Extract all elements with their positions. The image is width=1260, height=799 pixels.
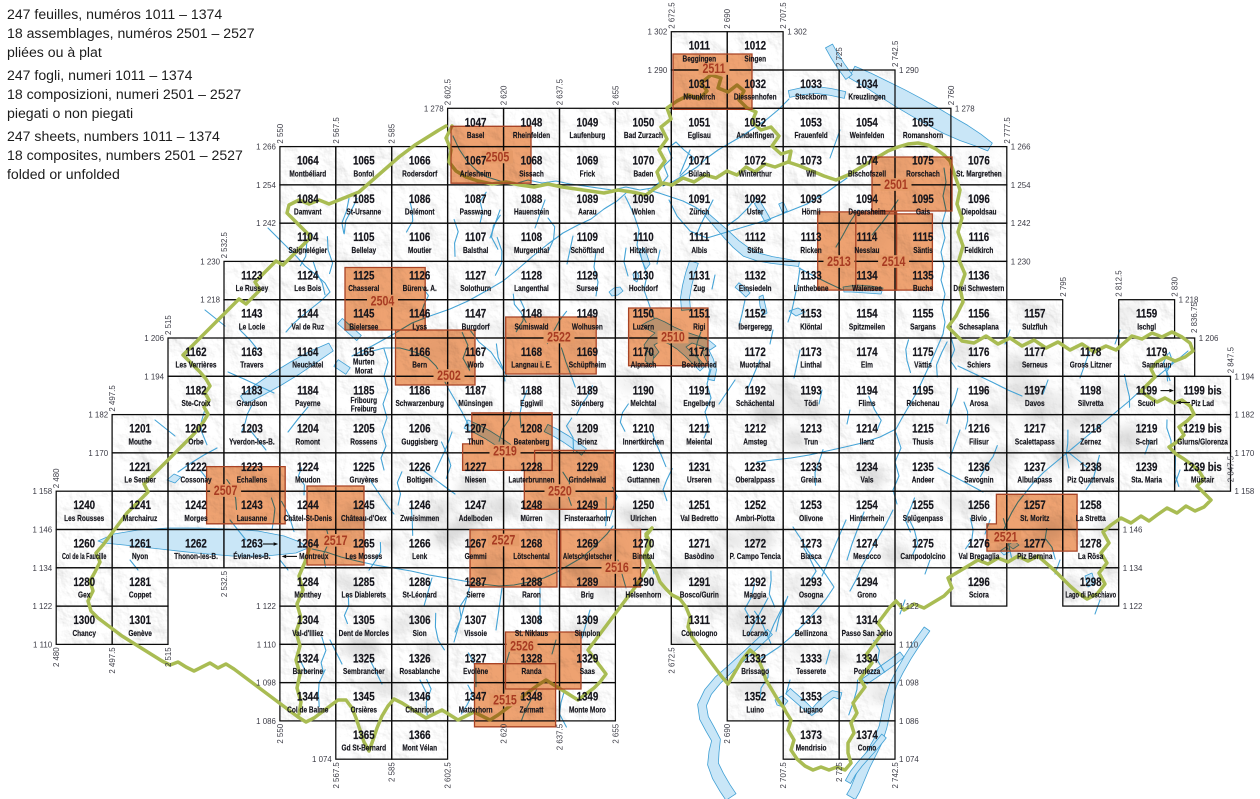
svg-text:Albis: Albis [691,245,707,255]
svg-text:Lago di Poschiavo: Lago di Poschiavo [1065,589,1116,600]
svg-text:2 480: 2 480 [52,468,61,488]
svg-text:Beatenberg: Beatenberg [514,436,550,446]
svg-text:1273: 1273 [800,538,822,551]
svg-text:Brienz: Brienz [577,436,597,446]
svg-text:Müstair: Müstair [1191,475,1214,485]
svg-text:Weinfelden: Weinfelden [850,130,885,140]
svg-text:Zweisimmen: Zweisimmen [400,513,439,523]
svg-text:247 feuilles, numéros 1011 – 1: 247 feuilles, numéros 1011 – 1374 [7,6,222,22]
svg-text:Linthal: Linthal [800,360,821,370]
svg-text:Rheinfelden: Rheinfelden [513,130,551,140]
svg-text:1225: 1225 [353,461,375,474]
svg-text:1352: 1352 [744,691,766,704]
svg-text:1 122: 1 122 [899,602,919,611]
svg-text:Saignelégier: Saignelégier [288,245,327,255]
svg-text:1 158: 1 158 [1235,487,1255,496]
svg-text:1148: 1148 [521,308,542,321]
svg-text:Evolène: Evolène [463,666,488,676]
svg-text:Brig: Brig [581,590,594,600]
svg-text:1203: 1203 [241,423,263,436]
svg-text:Säntis: Säntis [913,245,933,255]
svg-text:1124: 1124 [297,270,318,283]
svg-text:Guttannen: Guttannen [627,475,660,485]
svg-text:2505: 2505 [486,149,510,165]
svg-text:2510: 2510 [661,329,685,345]
svg-text:Davos: Davos [1025,398,1045,408]
svg-text:Münsingen: Münsingen [458,398,493,408]
svg-text:1115: 1115 [913,231,934,244]
svg-text:1048: 1048 [521,117,543,130]
svg-text:2522: 2522 [547,329,571,345]
svg-text:1197: 1197 [1024,385,1045,398]
svg-text:1226: 1226 [409,461,431,474]
svg-text:Burgdorf: Burgdorf [462,321,490,331]
svg-text:Helsenhorn: Helsenhorn [625,590,661,600]
svg-text:1241: 1241 [129,500,151,513]
svg-text:1311: 1311 [689,614,710,627]
svg-text:1272: 1272 [744,538,766,551]
svg-text:1105: 1105 [353,231,374,244]
svg-text:1207: 1207 [465,423,487,436]
svg-text:Murgenthal: Murgenthal [514,245,549,255]
svg-text:1234: 1234 [856,461,878,474]
svg-text:Zermatt: Zermatt [520,704,544,714]
svg-text:Barberine: Barberine [293,666,323,676]
svg-text:Savognin: Savognin [964,475,994,485]
svg-text:1184: 1184 [297,385,318,398]
svg-text:1348: 1348 [521,691,543,704]
svg-text:Gd St-Bernard: Gd St-Bernard [342,743,387,753]
svg-text:1052: 1052 [744,117,766,130]
svg-text:1069: 1069 [577,155,599,168]
svg-text:Col de Balme: Col de Balme [287,704,328,714]
svg-text:2502: 2502 [437,368,461,384]
svg-text:1244: 1244 [297,500,319,513]
svg-text:Mesocco: Mesocco [853,551,881,561]
svg-text:1199: 1199 [1136,385,1157,398]
svg-text:Zug: Zug [693,283,705,293]
svg-text:Winterthur: Winterthur [739,168,772,178]
svg-text:1 110: 1 110 [33,640,53,649]
svg-text:Beckenried: Beckenried [682,360,717,370]
svg-text:1345: 1345 [353,691,375,704]
svg-text:Yverdon-les-B.: Yverdon-les-B. [229,436,275,446]
svg-text:Flims: Flims [858,398,875,408]
svg-text:Thonon-les-B.: Thonon-les-B. [174,551,218,561]
svg-text:1266: 1266 [409,538,431,551]
svg-text:1231: 1231 [688,461,710,474]
svg-text:Meiental: Meiental [686,436,712,446]
svg-text:2513: 2513 [827,254,851,270]
svg-text:2527: 2527 [492,532,516,548]
svg-text:1214: 1214 [856,423,878,436]
svg-text:Zernez: Zernez [1080,436,1101,446]
svg-text:1208: 1208 [521,423,543,436]
svg-text:1212: 1212 [744,423,766,436]
svg-text:Moutier: Moutier [408,245,432,255]
svg-text:1047: 1047 [465,117,487,130]
svg-text:1249: 1249 [577,500,599,513]
svg-text:1195: 1195 [912,385,933,398]
svg-text:Wil: Wil [806,168,816,178]
svg-text:Beggingen: Beggingen [682,53,716,63]
svg-text:2 567.5: 2 567.5 [332,117,341,144]
svg-text:Mürren: Mürren [520,513,542,523]
svg-text:Reichenau: Reichenau [907,398,940,408]
svg-text:pliées ou à plat: pliées ou à plat [7,44,102,60]
svg-text:1270: 1270 [633,538,655,551]
svg-text:Saas: Saas [580,666,595,676]
svg-text:Adelboden: Adelboden [459,513,493,523]
svg-text:1245: 1245 [353,500,375,513]
svg-text:Orsières: Orsières [351,704,377,714]
svg-text:Col de la Faucille: Col de la Faucille [62,551,106,562]
svg-text:2 515: 2 515 [164,315,173,335]
svg-text:2 847.5: 2 847.5 [1227,455,1236,482]
svg-text:Locarno: Locarno [742,628,768,638]
svg-text:1096: 1096 [968,193,990,206]
svg-text:Les Mosses: Les Mosses [345,551,382,561]
svg-text:Gruyères: Gruyères [350,475,379,485]
svg-text:1201: 1201 [129,423,151,436]
svg-text:1253: 1253 [800,500,822,513]
svg-text:1268: 1268 [521,538,543,551]
svg-text:Ilanz: Ilanz [860,436,875,446]
svg-text:2 602.5: 2 602.5 [444,762,453,789]
svg-text:1229: 1229 [577,461,599,474]
svg-text:Muotathal: Muotathal [740,360,771,370]
svg-text:1034: 1034 [856,78,878,91]
svg-text:Sörenberg: Sörenberg [571,398,604,408]
svg-text:1130: 1130 [633,270,654,283]
svg-text:Coppet: Coppet [129,590,152,600]
svg-text:1070: 1070 [633,155,655,168]
svg-text:1262: 1262 [185,538,207,551]
svg-text:1235: 1235 [912,461,934,474]
svg-text:1 266: 1 266 [1011,143,1031,152]
svg-text:1280: 1280 [73,576,95,589]
svg-text:1254: 1254 [856,500,878,513]
svg-text:1086: 1086 [409,193,431,206]
svg-text:1 098: 1 098 [899,679,919,688]
svg-text:1237: 1237 [1024,461,1046,474]
svg-text:1193: 1193 [801,385,822,398]
svg-text:1291: 1291 [688,576,710,589]
svg-text:2 760: 2 760 [947,85,956,105]
svg-text:Schiers: Schiers [967,360,991,370]
svg-text:1334: 1334 [856,653,878,666]
svg-text:Lyss: Lyss [412,321,427,331]
svg-text:Wohlen: Wohlen [632,207,656,217]
svg-text:Piz Lad: Piz Lad [1191,398,1214,408]
svg-text:Basel: Basel [467,130,484,140]
svg-text:1300: 1300 [73,614,95,627]
svg-text:2520: 2520 [548,483,572,499]
svg-text:St-Léonard: St-Léonard [403,590,438,600]
svg-text:2 707.5: 2 707.5 [779,2,788,29]
svg-text:Lausanne: Lausanne [237,513,267,523]
svg-text:Glurns/Glorenza: Glurns/Glorenza [1177,436,1228,446]
svg-text:Elm: Elm [861,360,873,370]
svg-text:2 655: 2 655 [611,85,620,105]
svg-text:Uster: Uster [747,207,764,217]
svg-text:1222: 1222 [185,461,207,474]
svg-text:Bosco/Gurin: Bosco/Gurin [680,590,719,600]
svg-text:2521: 2521 [994,529,1018,545]
svg-text:Laufenburg: Laufenburg [569,130,605,140]
svg-text:2 690: 2 690 [723,8,732,28]
svg-text:Comologno: Comologno [681,628,717,638]
svg-text:1164: 1164 [297,346,318,359]
svg-text:Diepoldsau: Diepoldsau [961,207,996,217]
svg-text:1179: 1179 [1146,346,1167,359]
svg-text:1112: 1112 [745,231,766,244]
svg-text:1290: 1290 [633,576,655,589]
svg-text:Ste-Croix: Ste-Croix [182,398,212,408]
svg-text:Nyon: Nyon [132,551,149,561]
svg-text:1 254: 1 254 [1011,181,1031,190]
svg-text:Tesserete: Tesserete [796,666,826,676]
svg-text:Sembrancher: Sembrancher [343,666,385,676]
svg-text:1324: 1324 [297,653,319,666]
svg-text:Engelberg: Engelberg [683,398,715,408]
svg-text:Degersheim: Degersheim [848,207,885,217]
svg-text:1243: 1243 [241,500,263,513]
svg-text:2 795: 2 795 [1059,276,1068,296]
svg-text:1129: 1129 [577,270,598,283]
svg-text:Schwarzenburg: Schwarzenburg [395,398,444,408]
svg-text:1132: 1132 [745,270,766,283]
svg-text:2 725: 2 725 [835,762,844,782]
svg-text:Kreuzlingen: Kreuzlingen [848,92,886,102]
svg-text:1011: 1011 [689,40,710,53]
svg-text:1 086: 1 086 [899,717,919,726]
svg-text:Morges: Morges [184,513,207,523]
svg-text:1 170: 1 170 [88,449,108,458]
svg-text:Lötschental: Lötschental [513,551,550,561]
svg-text:247 fogli, numeri 1011 – 1374: 247 fogli, numeri 1011 – 1374 [7,67,193,83]
svg-text:1202: 1202 [185,423,207,436]
svg-text:Vättis: Vättis [914,360,932,370]
svg-text:1333: 1333 [800,653,822,666]
svg-text:Steckborn: Steckborn [795,92,827,102]
svg-text:1301: 1301 [129,614,151,627]
svg-text:Andeer: Andeer [912,475,934,485]
svg-text:Lauterbrunnen: Lauterbrunnen [509,475,555,485]
svg-text:Walensee: Walensee [852,283,882,293]
svg-text:2 690: 2 690 [723,723,732,743]
svg-text:1055: 1055 [912,117,934,130]
svg-text:1305: 1305 [353,614,375,627]
svg-text:Guggisberg: Guggisberg [401,436,438,446]
svg-text:1155: 1155 [912,308,933,321]
svg-text:1073: 1073 [800,155,822,168]
svg-text:Hochdorf: Hochdorf [629,283,658,293]
svg-text:1 182: 1 182 [88,411,108,420]
svg-text:2 742.5: 2 742.5 [891,762,900,789]
svg-text:2504: 2504 [371,293,395,309]
svg-text:1211: 1211 [689,423,710,436]
svg-text:Grindelwald: Grindelwald [569,475,607,485]
svg-text:1209: 1209 [577,423,599,436]
svg-text:Val-d'Illiez: Val-d'Illiez [292,628,323,638]
svg-text:Freiburg: Freiburg [351,404,377,414]
svg-text:2 847.5: 2 847.5 [1227,346,1236,373]
svg-text:Orbe: Orbe [188,436,203,446]
svg-text:1 146: 1 146 [1123,526,1143,535]
svg-text:Vals: Vals [860,475,873,485]
svg-text:1215: 1215 [912,423,934,436]
svg-text:Balsthal: Balsthal [463,245,488,255]
svg-text:Châtel-St-Denis: Châtel-St-Denis [284,513,332,523]
svg-text:1285: 1285 [353,576,375,589]
svg-text:1149: 1149 [577,308,598,321]
svg-text:Neunkirch: Neunkirch [683,92,715,102]
svg-text:1294: 1294 [856,576,878,589]
svg-text:2 620: 2 620 [500,85,509,105]
svg-text:1 302: 1 302 [787,28,807,37]
svg-text:1204: 1204 [297,423,319,436]
svg-text:Gex: Gex [78,590,91,600]
svg-text:1277: 1277 [1024,538,1046,551]
svg-text:Mont Vélan: Mont Vélan [402,743,437,753]
svg-text:Nesslau: Nesslau [855,245,880,255]
svg-text:1267: 1267 [465,538,487,551]
svg-text:1328: 1328 [521,653,543,666]
svg-text:1127: 1127 [465,270,486,283]
svg-text:1238: 1238 [1080,461,1102,474]
svg-text:Aarau: Aarau [578,207,597,217]
svg-text:1171: 1171 [689,346,710,359]
svg-text:1239 bis: 1239 bis [1183,461,1222,474]
svg-text:1308: 1308 [521,614,543,627]
svg-text:Scalettapass: Scalettapass [1015,436,1055,446]
svg-text:1218: 1218 [1080,423,1102,436]
svg-text:Langenthal: Langenthal [514,283,549,293]
svg-text:Raron: Raron [522,590,541,600]
svg-text:Rossens: Rossens [350,436,377,446]
svg-text:1252: 1252 [744,500,766,513]
svg-text:1271: 1271 [688,538,710,551]
svg-text:Sargans: Sargans [910,321,936,331]
svg-text:2507: 2507 [214,483,238,499]
svg-text:Innertkirchen: Innertkirchen [623,436,665,446]
svg-text:1265: 1265 [353,538,375,551]
svg-text:1032: 1032 [744,78,766,91]
svg-text:1090: 1090 [633,193,655,206]
svg-text:2 585: 2 585 [388,762,397,782]
svg-text:Le Locle: Le Locle [239,321,265,331]
svg-text:Echallens: Echallens [237,475,267,485]
svg-text:1067: 1067 [465,155,487,168]
svg-text:1 218: 1 218 [200,296,220,305]
svg-text:1 194: 1 194 [1235,372,1255,381]
svg-text:Singen: Singen [744,53,766,63]
svg-text:1325: 1325 [353,653,375,666]
svg-text:St. Margrethen: St. Margrethen [956,168,1002,178]
svg-text:1242: 1242 [185,500,207,513]
svg-text:Sulzfluh: Sulzfluh [1022,321,1048,331]
svg-text:1306: 1306 [409,614,431,627]
svg-text:1 074: 1 074 [899,755,919,764]
svg-text:1 146: 1 146 [32,526,52,535]
svg-text:Bellinzona: Bellinzona [795,628,828,638]
svg-text:Scuol: Scuol [1138,398,1156,408]
svg-text:1 278: 1 278 [424,104,444,113]
svg-text:1053: 1053 [800,117,822,130]
svg-text:Lenk: Lenk [412,551,428,561]
svg-text:1196: 1196 [968,385,989,398]
svg-text:2 707.5: 2 707.5 [779,762,788,789]
svg-text:1089: 1089 [577,193,599,206]
svg-text:St. Moritz: St. Moritz [1020,513,1049,523]
svg-text:Aletschgletscher: Aletschgletscher [563,551,612,561]
svg-text:1 122: 1 122 [32,602,52,611]
svg-text:1128: 1128 [521,270,542,283]
svg-text:Bern: Bern [412,360,427,370]
svg-text:1 230: 1 230 [200,257,220,266]
svg-text:1188: 1188 [521,385,542,398]
svg-text:Tödi: Tödi [804,398,818,408]
svg-text:Diessenhofen: Diessenhofen [734,92,777,102]
svg-text:1109: 1109 [577,231,598,244]
svg-text:1123: 1123 [241,270,262,283]
svg-text:1365: 1365 [353,729,375,742]
svg-text:1373: 1373 [800,729,822,742]
svg-text:1174: 1174 [856,346,877,359]
svg-text:1296: 1296 [968,576,990,589]
svg-text:Bischofszell: Bischofszell [848,168,886,178]
svg-text:Feldkirch: Feldkirch [964,245,993,255]
svg-text:Boltigen: Boltigen [407,475,433,485]
svg-text:1292: 1292 [744,576,766,589]
svg-text:2 777.5: 2 777.5 [1003,117,1012,144]
svg-text:Wolhusen: Wolhusen [572,321,603,331]
svg-text:Sumiswald: Sumiswald [514,321,548,331]
svg-text:1 134: 1 134 [1123,564,1143,573]
svg-text:Silvretta: Silvretta [1078,398,1104,408]
svg-text:1190: 1190 [633,385,654,398]
svg-text:1314: 1314 [856,614,878,627]
svg-text:2 725: 2 725 [835,47,844,67]
svg-text:1145: 1145 [353,308,374,321]
svg-text:Monte Moro: Monte Moro [569,704,606,714]
svg-text:1251: 1251 [688,500,710,513]
svg-text:Finsteraarhorn: Finsteraarhorn [564,513,610,523]
svg-text:Simplon: Simplon [575,628,601,638]
svg-text:1166: 1166 [409,346,430,359]
svg-text:Bonfol: Bonfol [353,168,374,178]
svg-text:Le Russey: Le Russey [236,283,269,293]
svg-text:1 266: 1 266 [256,143,276,152]
svg-text:1049: 1049 [577,117,599,130]
svg-text:Travers: Travers [240,360,263,370]
svg-text:1064: 1064 [297,155,319,168]
svg-text:1287: 1287 [465,576,487,589]
svg-text:Grandson: Grandson [237,398,268,408]
svg-text:1 302: 1 302 [648,28,668,37]
svg-text:1084: 1084 [297,193,319,206]
svg-text:Sta. Maria: Sta. Maria [1131,475,1162,485]
svg-text:Zürich: Zürich [689,207,709,217]
svg-text:Chancy: Chancy [72,628,96,638]
svg-text:1144: 1144 [297,308,318,321]
svg-text:P. Campo Tencia: P. Campo Tencia [730,551,782,561]
svg-text:1110: 1110 [633,231,654,244]
svg-text:Moudon: Moudon [295,475,321,485]
svg-text:Hauenstein: Hauenstein [514,207,549,217]
svg-text:1 254: 1 254 [256,181,276,190]
